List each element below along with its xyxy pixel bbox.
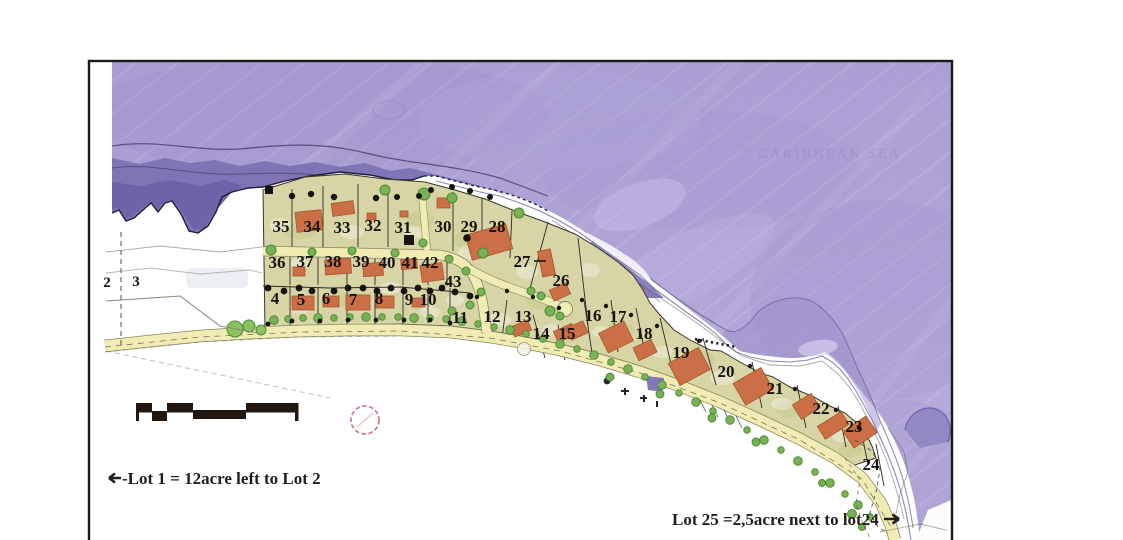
svg-text:27: 27 <box>514 252 532 271</box>
svg-text:37: 37 <box>297 252 315 271</box>
svg-text:6: 6 <box>322 289 331 308</box>
svg-text:34: 34 <box>304 217 322 236</box>
svg-text:29: 29 <box>461 217 478 236</box>
svg-text:22: 22 <box>813 399 830 418</box>
svg-text:20: 20 <box>718 362 735 381</box>
svg-text:9: 9 <box>405 290 414 309</box>
svg-text:Lot 25 =2,5acre next to lot24: Lot 25 =2,5acre next to lot24 <box>672 510 879 529</box>
svg-text:24: 24 <box>863 455 881 474</box>
svg-text:CARIBBEAN SEA: CARIBBEAN SEA <box>758 147 901 162</box>
svg-text:2: 2 <box>103 275 111 291</box>
svg-text:-Lot 1 = 12acre left to Lot 2: -Lot 1 = 12acre left to Lot 2 <box>122 469 321 488</box>
svg-text:17: 17 <box>610 307 628 326</box>
svg-text:36: 36 <box>269 253 286 272</box>
svg-text:12: 12 <box>484 307 501 326</box>
svg-text:14: 14 <box>533 324 551 343</box>
svg-text:28: 28 <box>489 217 506 236</box>
svg-text:15: 15 <box>559 324 576 343</box>
svg-text:21: 21 <box>767 379 784 398</box>
svg-text:16: 16 <box>585 306 602 325</box>
svg-text:40: 40 <box>379 253 396 272</box>
svg-text:39: 39 <box>353 252 370 271</box>
svg-text:32: 32 <box>365 216 382 235</box>
svg-text:42: 42 <box>422 253 439 272</box>
svg-text:4: 4 <box>271 289 280 308</box>
svg-text:23: 23 <box>846 417 863 436</box>
svg-text:13: 13 <box>515 307 532 326</box>
svg-text:10: 10 <box>420 290 437 309</box>
svg-text:8: 8 <box>375 289 384 308</box>
svg-text:3: 3 <box>132 274 140 290</box>
svg-text:31: 31 <box>395 218 412 237</box>
svg-text:33: 33 <box>334 218 351 237</box>
svg-text:26: 26 <box>553 271 570 290</box>
svg-text:43: 43 <box>445 272 462 291</box>
svg-text:41: 41 <box>402 253 419 272</box>
svg-text:30: 30 <box>435 217 452 236</box>
svg-text:19: 19 <box>673 343 690 362</box>
svg-text:18: 18 <box>636 324 653 343</box>
svg-text:11: 11 <box>452 308 468 327</box>
svg-text:35: 35 <box>273 217 290 236</box>
svg-text:7: 7 <box>349 290 358 309</box>
svg-text:5: 5 <box>297 290 306 309</box>
svg-text:38: 38 <box>325 252 342 271</box>
